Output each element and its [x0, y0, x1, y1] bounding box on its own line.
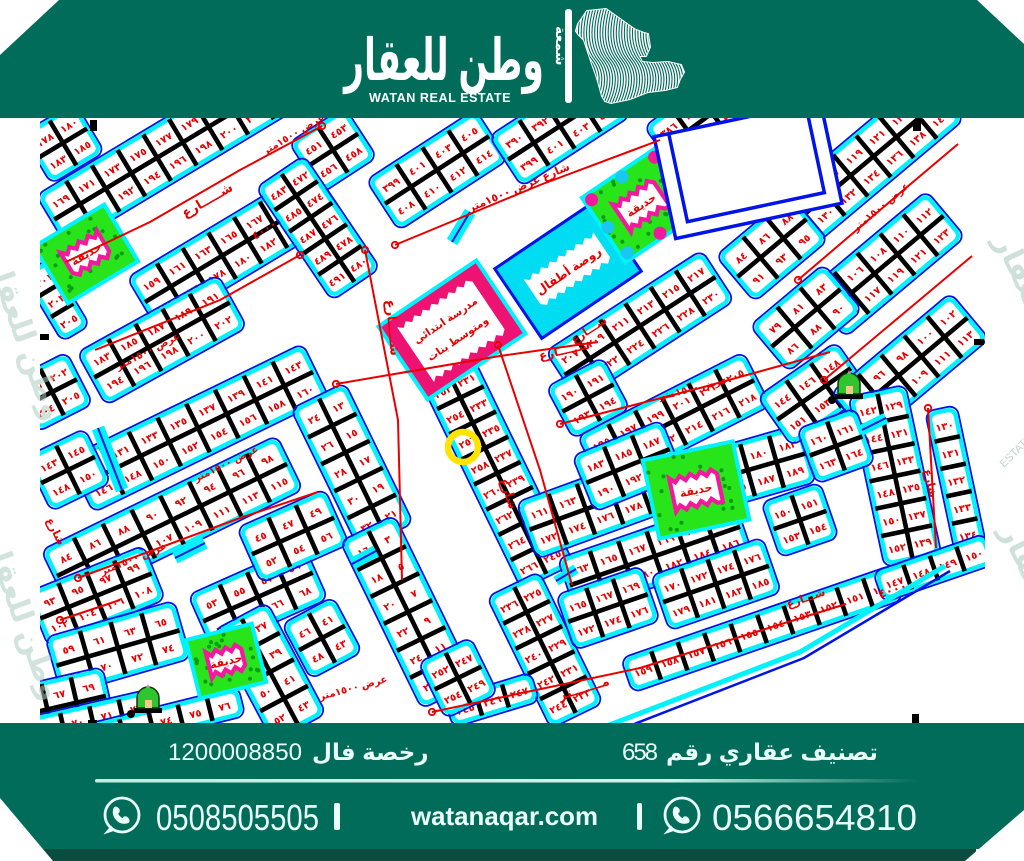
- svg-text:1200008850: 1200008850: [168, 739, 302, 766]
- svg-text:658: 658: [622, 739, 658, 766]
- svg-text:0566654810: 0566654810: [712, 797, 917, 838]
- svg-text:WATAN REAL ESTATE: WATAN REAL ESTATE: [369, 91, 511, 105]
- svg-text:0508505505: 0508505505: [156, 797, 319, 838]
- svg-text:watanaqar.com: watanaqar.com: [410, 801, 598, 831]
